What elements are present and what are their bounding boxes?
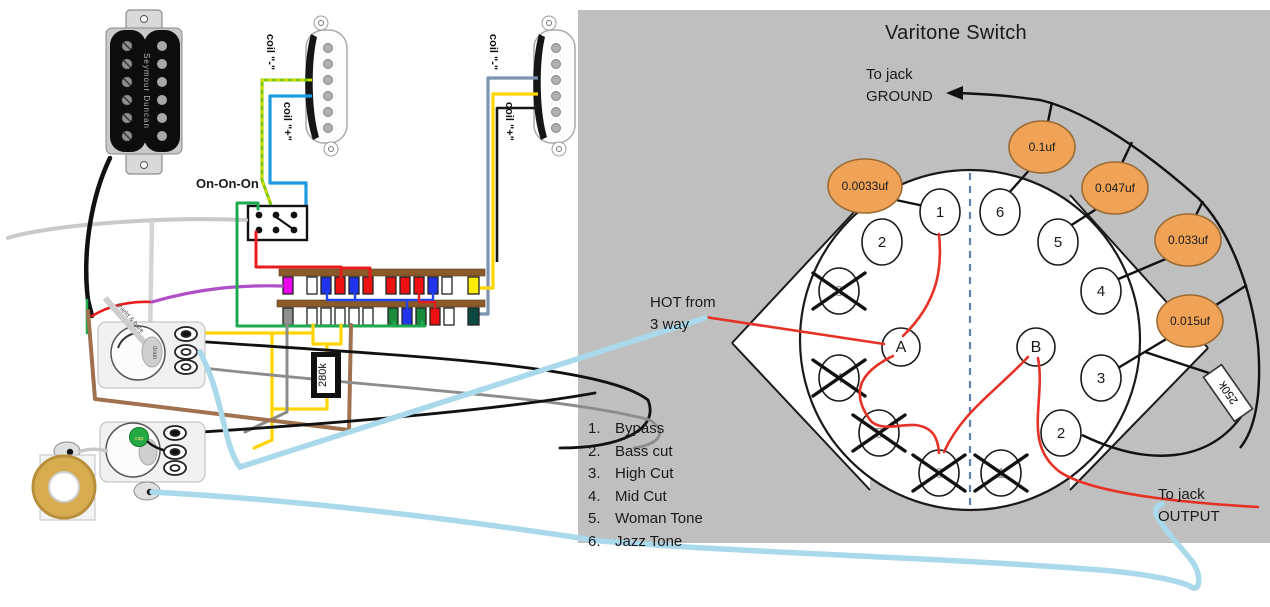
- svg-text:2: 2: [1057, 425, 1065, 442]
- legend-label: Mid Cut: [615, 486, 667, 509]
- jack-ground-wire: [78, 449, 108, 452]
- legend-number: 1.: [588, 418, 615, 441]
- pot-shaft-label: drain: [151, 346, 157, 359]
- legend-label: Bass cut: [615, 441, 673, 464]
- hot-annotation-line1: HOT from: [650, 292, 716, 314]
- legend-number: 6.: [588, 531, 615, 554]
- resistor-280k-label: 280k: [317, 363, 329, 387]
- legend-label: Jazz Tone: [615, 531, 682, 554]
- legend-number: 2.: [588, 441, 615, 464]
- tone-pot: cap: [100, 422, 205, 482]
- tone-capacitor-label: cap: [135, 436, 144, 442]
- svg-text:6: 6: [996, 204, 1004, 221]
- super-switch-lugs-top: [283, 277, 479, 294]
- output-annotation-line1: To jack: [1158, 484, 1220, 506]
- coil-minus-label: coil "-": [264, 34, 276, 70]
- humbucker-pickup: Seymour Duncan: [106, 10, 182, 174]
- varitone-position-legend: 1. Bypass 2. Bass cut 3. High Cut 4. Mid…: [588, 418, 703, 553]
- ground-annotation-line2: GROUND: [866, 86, 933, 108]
- capacitor-value-015: 0.015uf: [1170, 314, 1210, 328]
- legend-item: 6. Jazz Tone: [588, 531, 703, 554]
- hot-annotation-line2: 3 way: [650, 314, 716, 336]
- svg-text:4: 4: [1097, 283, 1105, 300]
- legend-label: Woman Tone: [615, 508, 703, 531]
- resistor-280k: 280k: [311, 352, 341, 398]
- coil-minus-label: coil "-": [487, 34, 499, 70]
- varitone-title: Varitone Switch: [885, 22, 1027, 45]
- single-coil-pickup-neck: [305, 16, 347, 156]
- ground-annotation: To jack GROUND: [866, 64, 933, 108]
- legend-label: Bypass: [615, 418, 664, 441]
- pole-b-label: B: [1031, 339, 1042, 356]
- legend-number: 5.: [588, 508, 615, 531]
- wiring-diagram-screenshot: 250k 1 2 3 4 5 6 6 5 4 3 2 1 A B: [0, 0, 1270, 607]
- legend-item: 2. Bass cut: [588, 441, 703, 464]
- legend-item: 1. Bypass: [588, 418, 703, 441]
- volume-pot-lugs: [175, 327, 197, 374]
- capacitor-value-047: 0.047uf: [1095, 181, 1135, 195]
- coil-polarity-labels: coil "-" coil "+" coil "-" coil "+": [264, 34, 515, 141]
- coil-plus-label: coil "+": [281, 102, 293, 141]
- single-coil-pickup-middle: [533, 16, 575, 156]
- pole-a-label: A: [896, 339, 907, 356]
- svg-text:5: 5: [1054, 234, 1062, 251]
- output-annotation: To jack OUTPUT: [1158, 484, 1220, 528]
- legend-number: 3.: [588, 463, 615, 486]
- super-switch: [277, 269, 485, 325]
- output-annotation-line2: OUTPUT: [1158, 506, 1220, 528]
- capacitor-value-01: 0.1uf: [1029, 140, 1056, 154]
- super-switch-lugs-bottom: [283, 308, 479, 325]
- capacitor-value-0033: 0.0033uf: [842, 179, 889, 193]
- legend-item: 5. Woman Tone: [588, 508, 703, 531]
- humbucker-brand-label: Seymour Duncan: [142, 53, 151, 129]
- ground-annotation-line1: To jack: [866, 64, 933, 86]
- toggle-switch-label: On-On-On: [196, 176, 259, 191]
- legend-label: High Cut: [615, 463, 673, 486]
- svg-text:3: 3: [1097, 370, 1105, 387]
- legend-item: 3. High Cut: [588, 463, 703, 486]
- tone-pot-lugs: [164, 426, 186, 475]
- svg-text:1: 1: [936, 204, 944, 221]
- legend-item: 4. Mid Cut: [588, 486, 703, 509]
- svg-text:2: 2: [878, 234, 886, 251]
- capacitor-value-033: 0.033uf: [1168, 233, 1208, 247]
- legend-number: 4.: [588, 486, 615, 509]
- hot-annotation: HOT from 3 way: [650, 292, 716, 336]
